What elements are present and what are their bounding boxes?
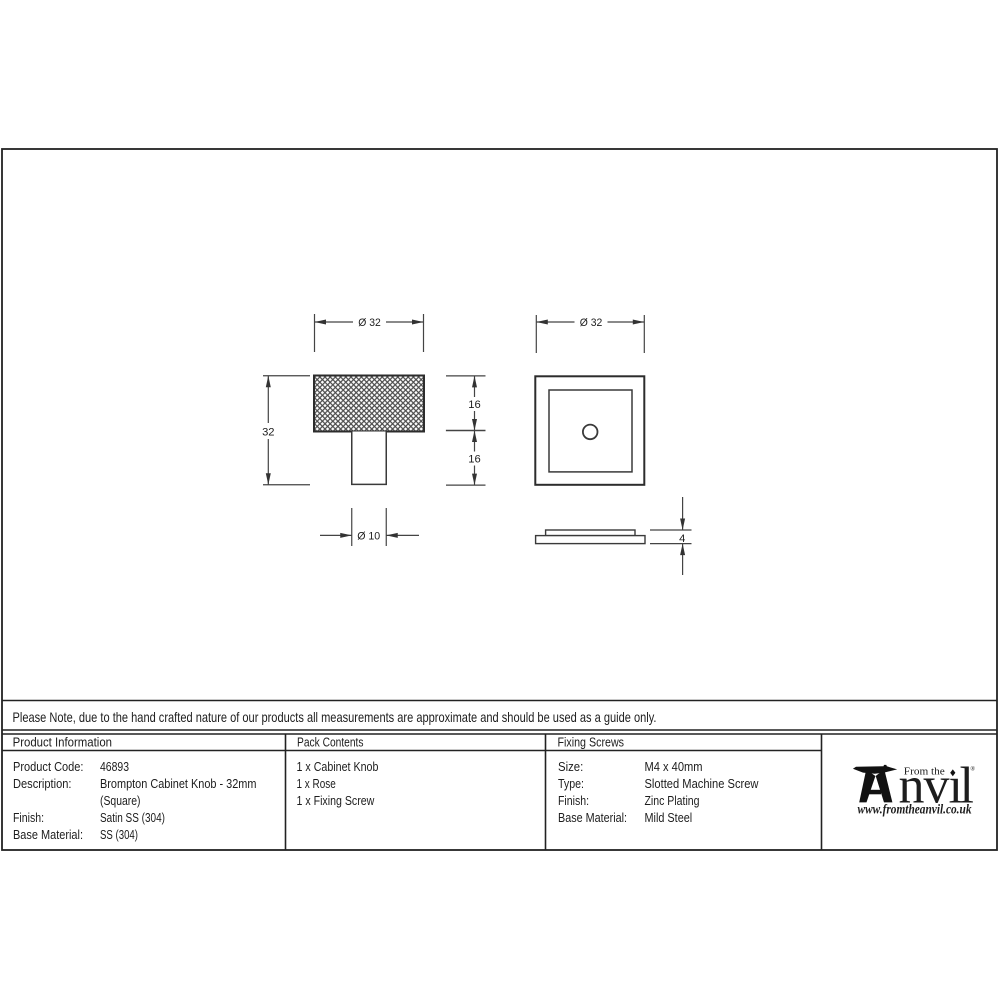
svg-text:Fixing Screws: Fixing Screws — [558, 734, 625, 749]
svg-text:46893: 46893 — [100, 760, 129, 774]
svg-text:1 x Fixing Screw: 1 x Fixing Screw — [297, 794, 376, 808]
svg-text:Zinc Plating: Zinc Plating — [645, 794, 700, 808]
svg-text:16: 16 — [468, 399, 480, 411]
svg-text:(Square): (Square) — [100, 794, 141, 808]
svg-text:1 x Rose: 1 x Rose — [297, 777, 336, 791]
svg-text:1 x Cabinet Knob: 1 x Cabinet Knob — [297, 760, 379, 774]
svg-text:®: ® — [970, 766, 975, 773]
svg-text:M4 x 40mm: M4 x 40mm — [645, 760, 703, 774]
svg-text:Please Note, due to the hand c: Please Note, due to the hand crafted nat… — [13, 710, 657, 725]
svg-text:Slotted Machine Screw: Slotted Machine Screw — [645, 777, 760, 791]
svg-text:www.fromtheanvil.co.uk: www.fromtheanvil.co.uk — [858, 803, 972, 818]
svg-text:Ø 32: Ø 32 — [580, 317, 603, 329]
svg-text:16: 16 — [468, 454, 480, 466]
svg-text:Finish:: Finish: — [558, 794, 589, 808]
svg-text:Description:: Description: — [13, 777, 72, 791]
svg-text:32: 32 — [262, 427, 274, 439]
svg-text:Size:: Size: — [558, 760, 583, 774]
svg-text:Brompton Cabinet Knob - 32mm: Brompton Cabinet Knob - 32mm — [100, 777, 257, 791]
svg-text:Base Material:: Base Material: — [558, 811, 627, 825]
svg-text:4: 4 — [679, 533, 685, 545]
svg-text:Finish:: Finish: — [13, 811, 44, 825]
svg-text:Type:: Type: — [558, 777, 584, 791]
svg-text:Product Information: Product Information — [13, 734, 112, 749]
svg-text:Ø 32: Ø 32 — [358, 317, 381, 329]
svg-text:Ø 10: Ø 10 — [357, 531, 380, 543]
svg-text:Base Material:: Base Material: — [13, 828, 83, 842]
svg-text:Mild Steel: Mild Steel — [645, 811, 693, 825]
svg-text:Satin SS (304): Satin SS (304) — [100, 811, 165, 825]
svg-text:Pack Contents: Pack Contents — [297, 734, 364, 749]
svg-text:Product Code:: Product Code: — [13, 760, 84, 774]
svg-text:SS (304): SS (304) — [100, 828, 138, 842]
